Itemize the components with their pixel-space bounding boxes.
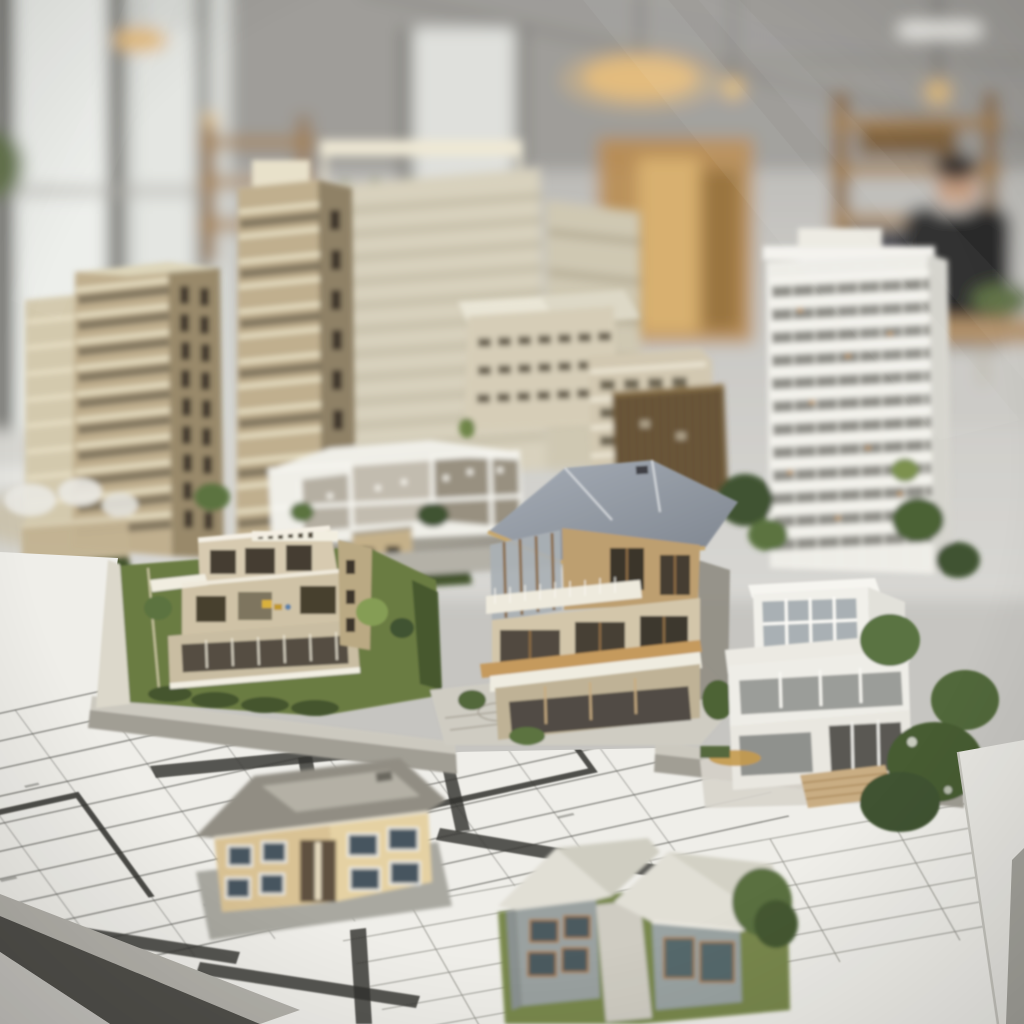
vignette [0,0,1024,1024]
photo-architectural-models [0,0,1024,1024]
scene-canvas [0,0,1024,1024]
